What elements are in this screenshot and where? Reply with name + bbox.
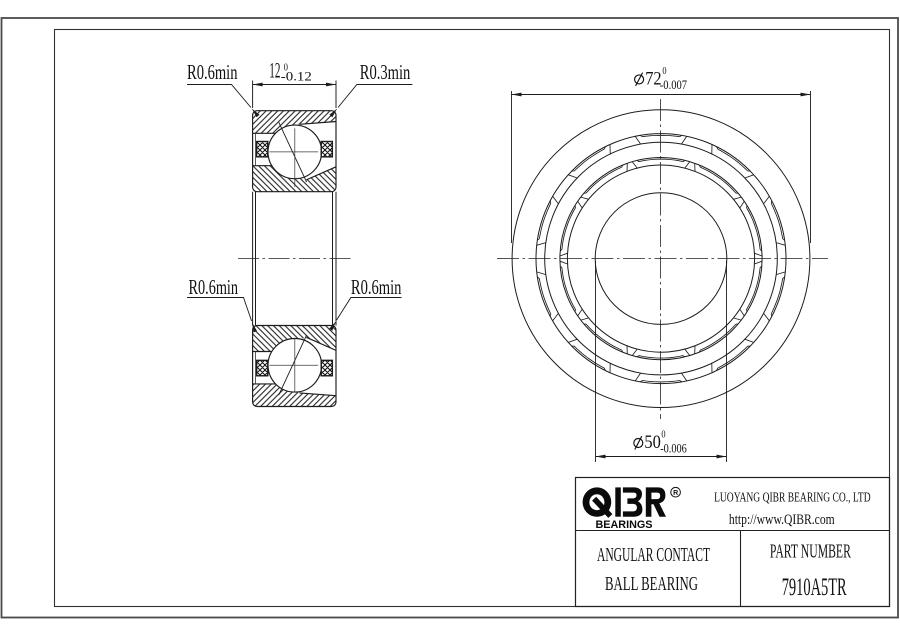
svg-text:-0.12: -0.12 <box>281 69 312 83</box>
svg-text:R0.3min: R0.3min <box>360 60 411 84</box>
svg-text:BALL BEARING: BALL BEARING <box>605 573 698 595</box>
svg-text:12: 12 <box>269 58 280 83</box>
svg-text:0: 0 <box>661 429 665 440</box>
svg-text:http://www.QIBR.com: http://www.QIBR.com <box>729 512 835 528</box>
svg-text:LUOYANG QIBR BEARING CO., LTD: LUOYANG QIBR BEARING CO., LTD <box>714 490 871 505</box>
svg-text:0: 0 <box>662 66 666 77</box>
svg-text:-0.007: -0.007 <box>660 77 688 92</box>
svg-text:7910A5TR: 7910A5TR <box>782 574 847 601</box>
svg-text:R0.6min: R0.6min <box>351 275 402 299</box>
svg-text:BEARINGS: BEARINGS <box>596 519 653 531</box>
svg-text:ANGULAR CONTACT: ANGULAR CONTACT <box>597 544 710 566</box>
svg-text:R0.6min: R0.6min <box>189 275 239 299</box>
svg-text:R0.6min: R0.6min <box>187 60 238 84</box>
svg-text:PART NUMBER: PART NUMBER <box>770 542 851 563</box>
svg-text:50: 50 <box>644 433 660 453</box>
svg-text:R: R <box>673 490 678 497</box>
svg-text:-0.006: -0.006 <box>660 440 687 455</box>
